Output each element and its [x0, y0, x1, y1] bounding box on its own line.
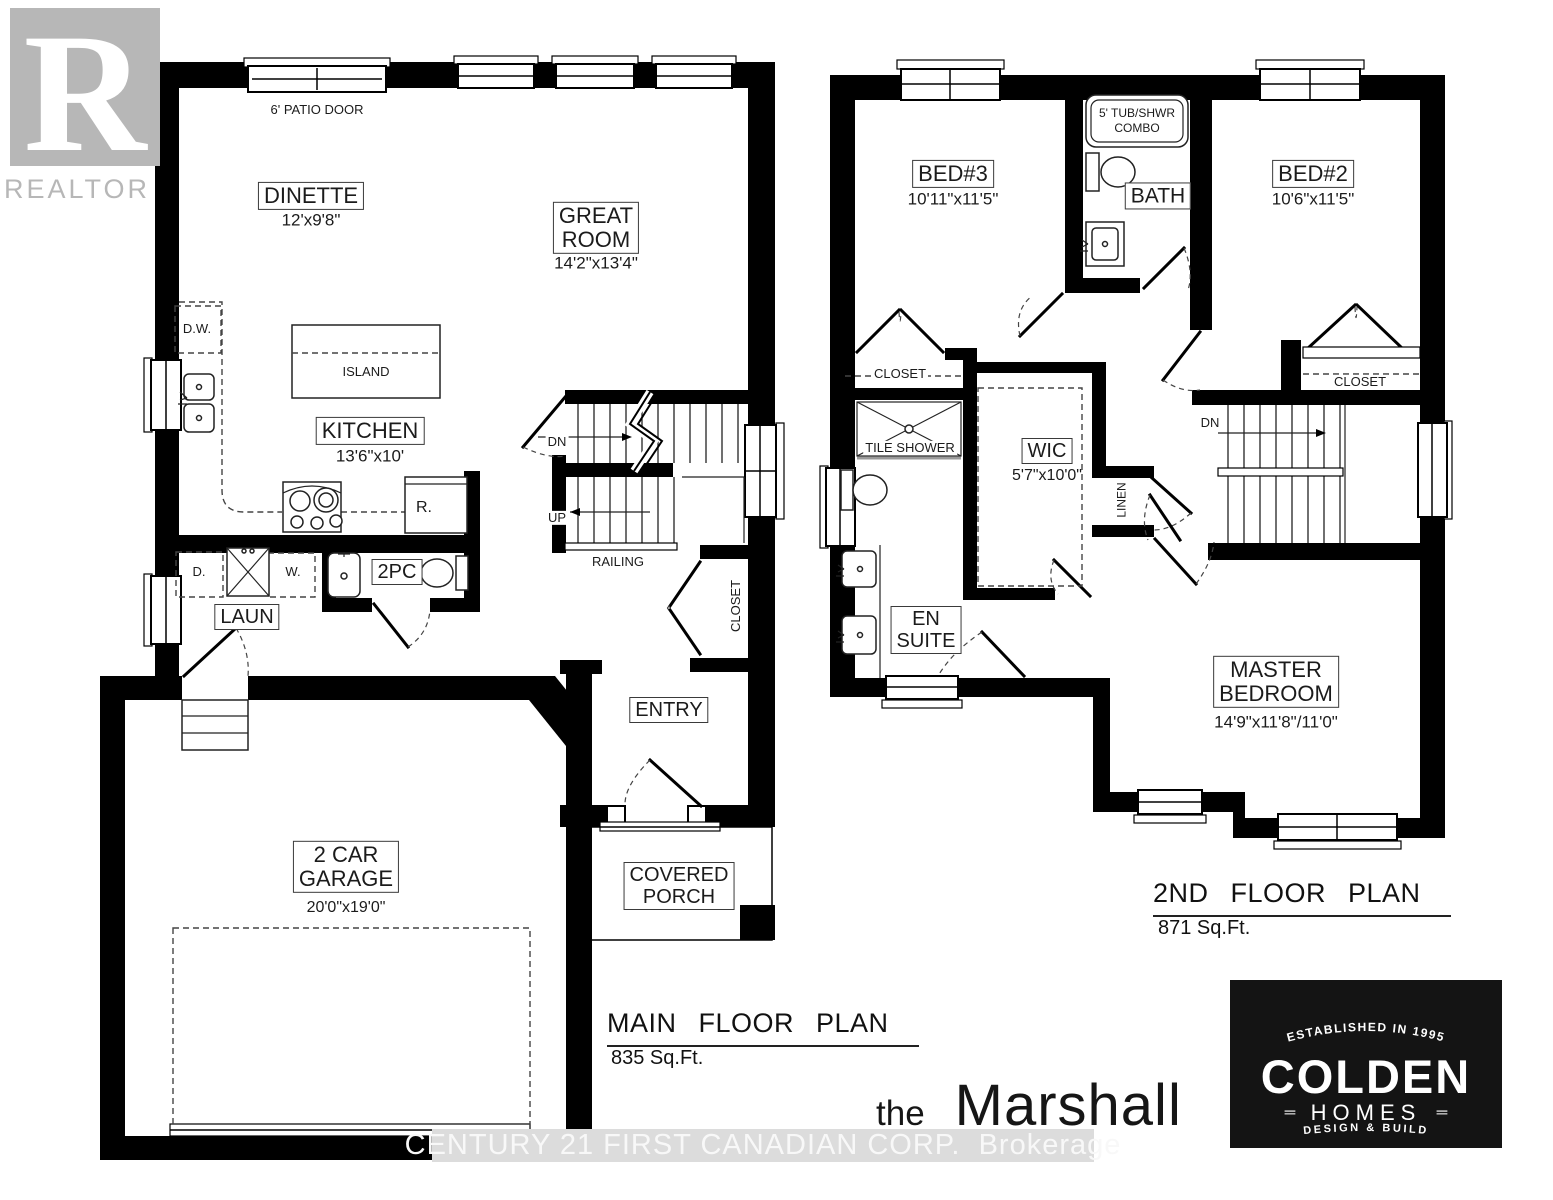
realtor-r-glyph: R	[24, 0, 149, 187]
second-floor-area: 871 Sq.Ft.	[1158, 917, 1250, 940]
main-floor-area: 835 Sq.Ft.	[611, 1047, 703, 1070]
bed2-label: BED#2	[1272, 160, 1354, 188]
dishwasher-label: D.W.	[183, 322, 211, 336]
stairs-up-label: UP	[546, 511, 568, 525]
builder-logo-art: ESTABLISHED IN 1995 COLDEN ═ HOMES ═ DES…	[1230, 980, 1502, 1148]
bed3-closet-label: CLOSET	[872, 367, 928, 381]
plan-name-text: Marshall	[955, 1072, 1182, 1139]
powder-room-label: 2PC	[372, 559, 423, 585]
main-floor-walls	[100, 62, 775, 1160]
wic-label: WIC	[1022, 438, 1073, 464]
fridge-label: R.	[416, 499, 432, 517]
garage-dims: 20'0"x19'0"	[307, 899, 386, 917]
second-stairs	[1218, 405, 1345, 543]
entry-closet-label: CLOSET	[729, 580, 743, 632]
bed2-dims: 10'6"x11'5"	[1272, 191, 1355, 210]
railing-label: RAILING	[590, 555, 646, 569]
kitchen-label: KITCHEN	[316, 417, 425, 445]
bed3-dims: 10'11"x11'5"	[908, 191, 999, 210]
logo-deco-left: ═	[1284, 1104, 1296, 1121]
great-room-label: GREAT ROOM	[553, 202, 639, 254]
bath-label: BATH	[1125, 182, 1191, 209]
main-floor-title: MAIN FLOOR PLAN	[607, 1008, 919, 1047]
dryer-label: D.	[193, 565, 206, 579]
logo-deco-right: ═	[1436, 1104, 1448, 1121]
island-label: ISLAND	[343, 365, 390, 379]
plan-name-title: the Marshall	[876, 1072, 1182, 1139]
patio-door-label: 6' PATIO DOOR	[270, 103, 363, 117]
washer-label: W.	[285, 565, 300, 579]
realtor-logo-icon: R	[10, 0, 160, 187]
garage-label: 2 CAR GARAGE	[293, 841, 399, 893]
ensuite-label: EN SUITE	[891, 606, 962, 654]
linen-label: LINEN	[1115, 482, 1128, 517]
logo-homes: HOMES	[1311, 1100, 1422, 1125]
kitchen-dims: 13'6"x10'	[336, 448, 404, 467]
laundry-label: LAUN	[214, 604, 279, 630]
floor-plan-page: R 6' PATIO DOOR DINETTE 12'x9'8" GREAT R…	[0, 0, 1553, 1200]
bed3-label: BED#3	[912, 160, 994, 188]
tile-shower-label: TILE SHOWER	[863, 441, 957, 455]
wic-dims: 5'7"x10'0"	[1012, 467, 1082, 485]
master-bedroom-dims: 14'9"x11'8"/11'0"	[1214, 714, 1338, 733]
bed2-closet-label: CLOSET	[1332, 375, 1388, 389]
logo-name: COLDEN	[1261, 1050, 1471, 1103]
tub-shower-label: 5' TUB/SHWR COMBO	[1099, 106, 1175, 136]
stairs-dn-label: DN	[546, 435, 569, 449]
dinette-dims: 12'x9'8"	[282, 212, 341, 231]
covered-porch-label: COVERED PORCH	[624, 862, 735, 910]
plan-name-prefix: the	[876, 1094, 925, 1134]
second-floor-title: 2ND FLOOR PLAN	[1153, 878, 1451, 917]
master-bedroom-label: MASTER BEDROOM	[1213, 656, 1339, 708]
builder-logo: ESTABLISHED IN 1995 COLDEN ═ HOMES ═ DES…	[1230, 980, 1502, 1153]
stairs2-dn-label: DN	[1199, 416, 1222, 430]
dinette-label: DINETTE	[258, 182, 364, 210]
great-room-dims: 14'2"x13'4"	[554, 255, 638, 274]
entry-label: ENTRY	[629, 697, 708, 723]
